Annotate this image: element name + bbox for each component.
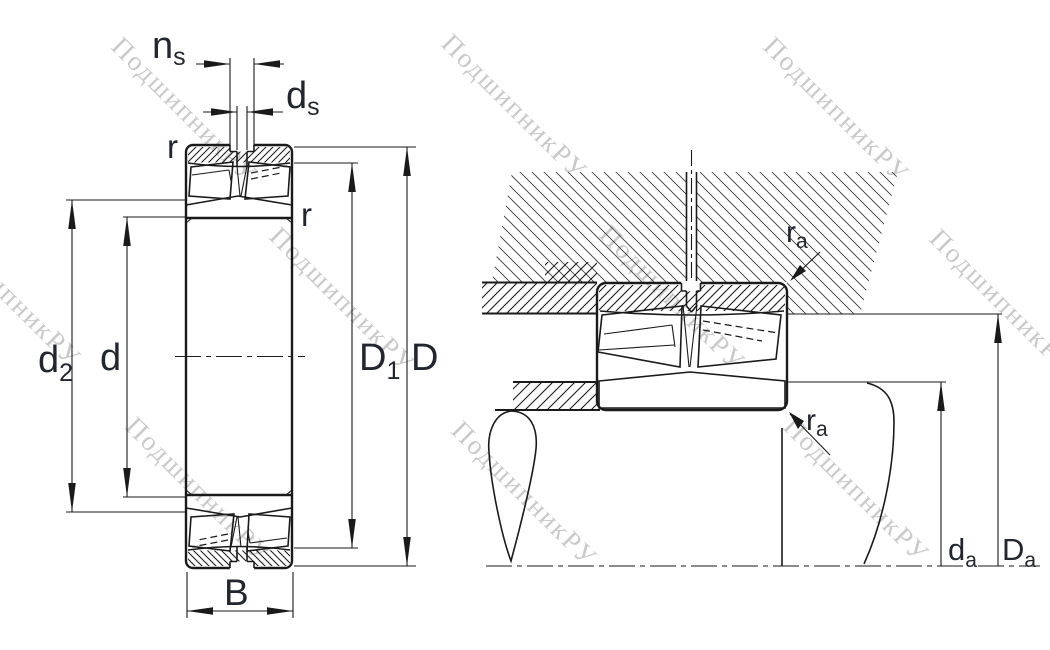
hidden-contour-bottom (192, 534, 228, 547)
dim-label-ns: ns (152, 25, 186, 71)
watermark: ПодшипникРУ (120, 411, 278, 569)
dim-label-D: D (411, 337, 438, 379)
housing-oil-duct (687, 150, 697, 283)
watermark: ПодшипникРУ (436, 28, 594, 186)
watermark: ПодшипникРУ (924, 223, 1050, 381)
cage-top-left (192, 170, 231, 181)
dim-label-ra-bottom: ra (806, 404, 828, 441)
dim-label-r-outer: r (167, 128, 178, 165)
dim-label-d: d (100, 337, 121, 379)
mounted-inner-ring (599, 372, 785, 408)
bearing-drawing: ПодшипникРУ ПодшипникРУ ПодшипникРУ Подш… (0, 0, 1050, 650)
inner-ring-section-top (186, 196, 292, 218)
watermark: ПодшипникРУ (778, 411, 936, 569)
mounted-cage-left (599, 325, 675, 350)
technical-drawing-canvas: ПодшипникРУ ПодшипникРУ ПодшипникРУ Подш… (0, 0, 1050, 650)
watermark: ПодшипникРУ (446, 415, 604, 573)
watermark: ПодшипникРУ (264, 221, 422, 379)
dim-label-B: B (224, 572, 249, 613)
dim-label-da: da (948, 532, 977, 572)
shaft-shoulder-section (495, 382, 600, 410)
watermark: ПодшипникРУ (758, 31, 916, 189)
dim-B: B (187, 572, 293, 618)
right-figure-mounting: ra ra da Da (482, 150, 1040, 572)
dim-label-ds: ds (286, 75, 320, 121)
dim-label-r-inner: r (301, 196, 312, 233)
dim-label-Da: Da (1002, 532, 1036, 572)
dim-da: da (788, 382, 977, 572)
